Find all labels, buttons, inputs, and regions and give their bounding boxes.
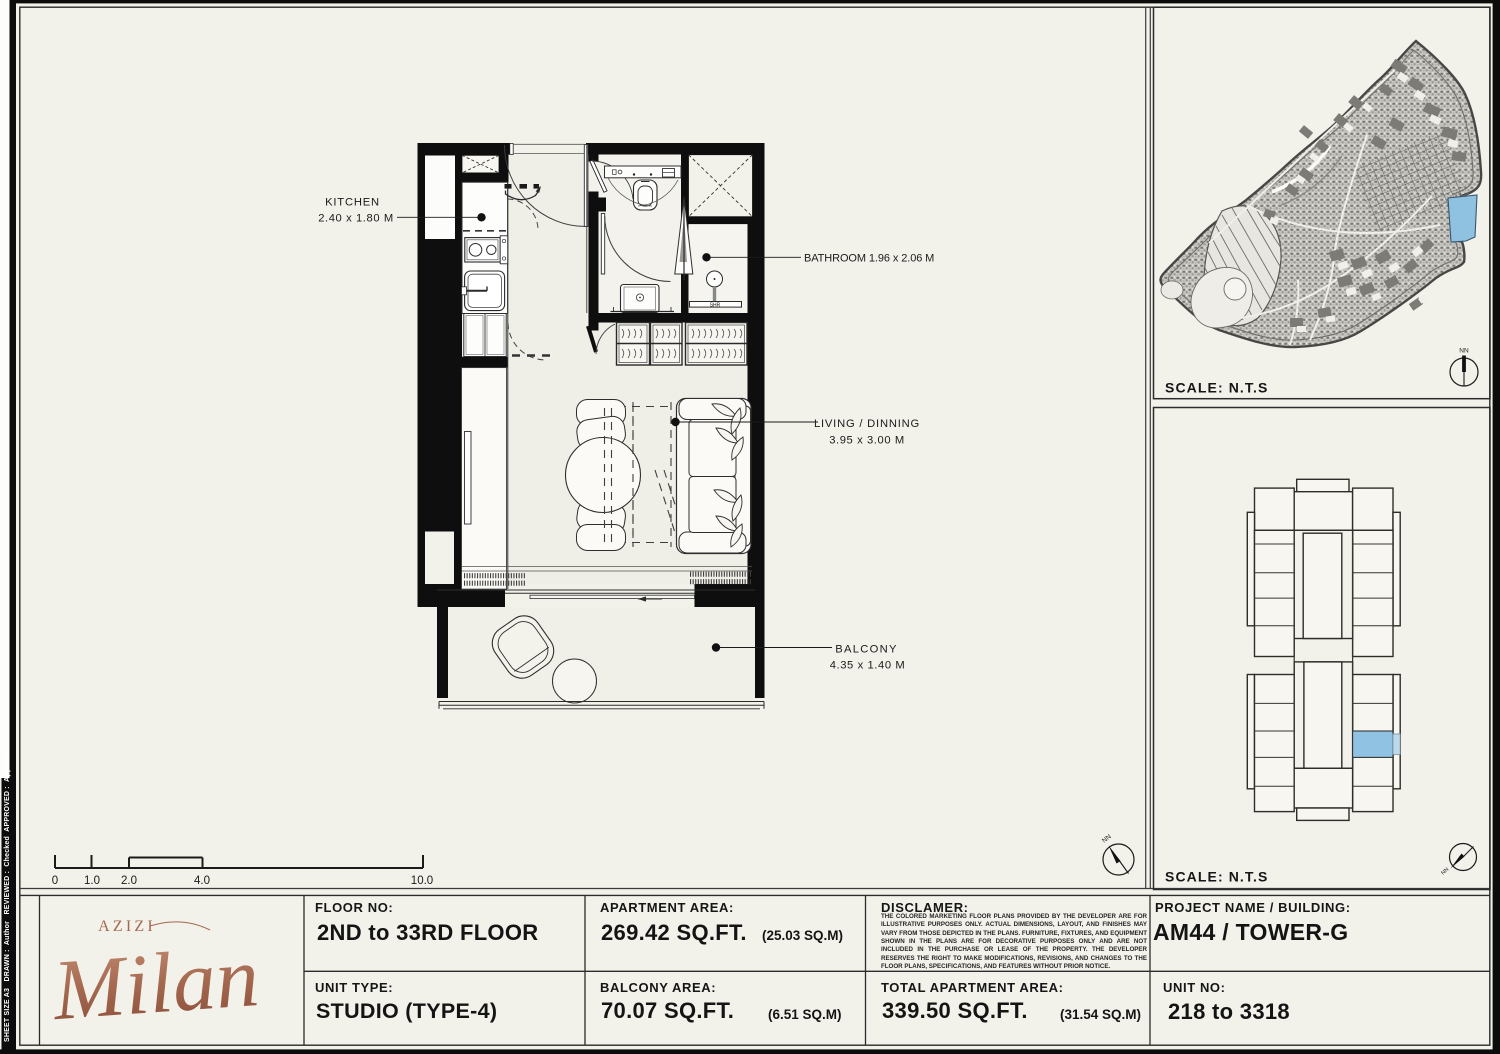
svg-text:Milan: Milan xyxy=(48,928,262,1038)
svg-text:AZIZI: AZIZI xyxy=(98,918,156,935)
